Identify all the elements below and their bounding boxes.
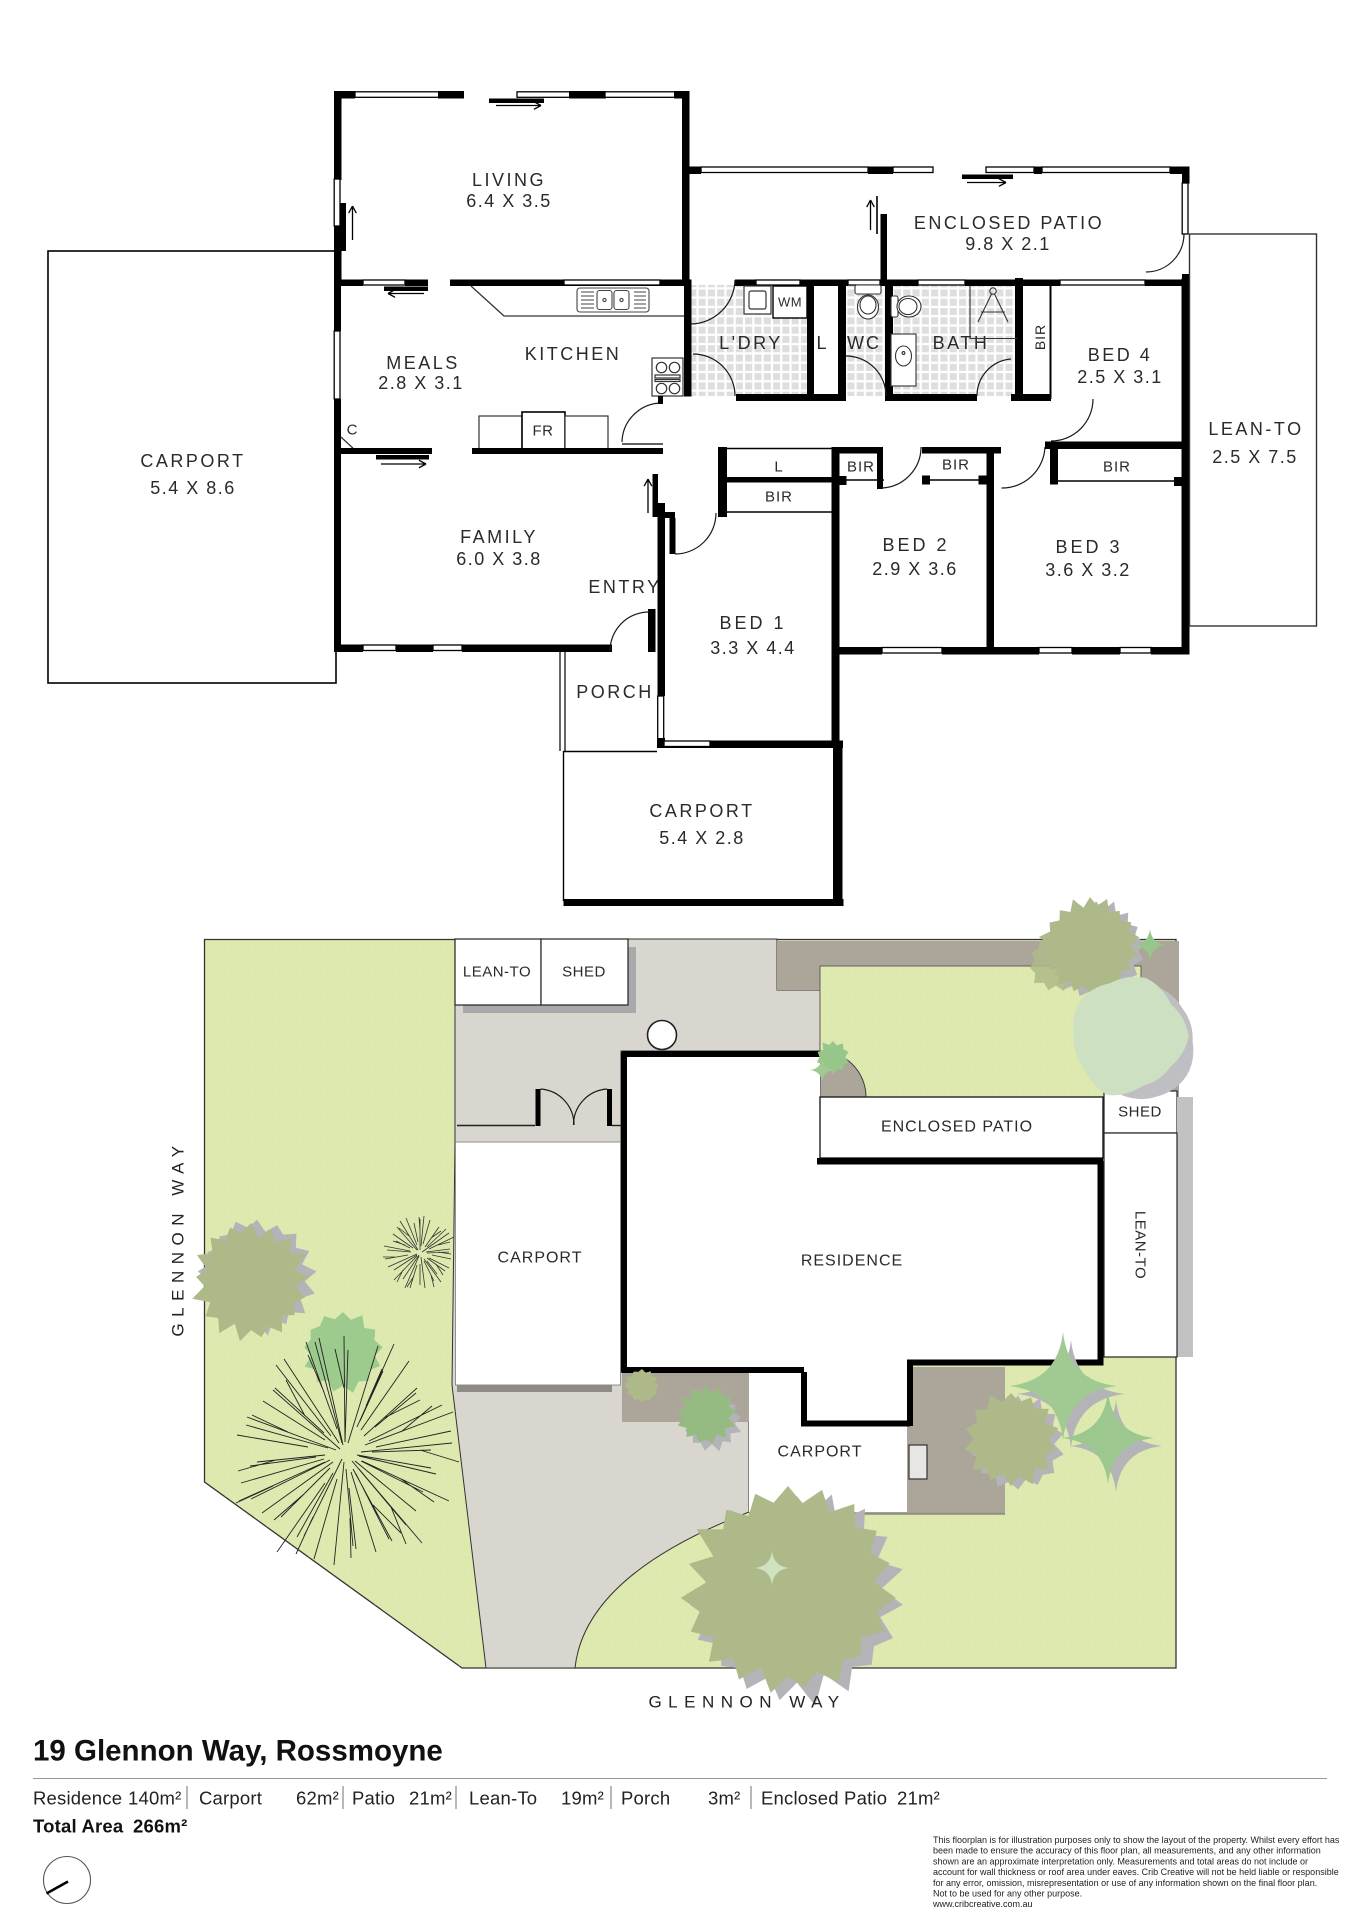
svg-text:2.5 X 7.5: 2.5 X 7.5	[1212, 447, 1298, 467]
svg-text:account for wall thickness or: account for wall thickness or roof area …	[933, 1867, 1339, 1877]
svg-text:5.4 X 8.6: 5.4 X 8.6	[150, 478, 236, 498]
svg-text:Not to be used for any other p: Not to be used for any other purpose.	[933, 1889, 1082, 1899]
svg-text:21m²: 21m²	[409, 1788, 452, 1809]
svg-text:BED 4: BED 4	[1088, 345, 1153, 365]
svg-text:GLENNON WAY: GLENNON WAY	[169, 1139, 188, 1336]
svg-text:LEAN-TO: LEAN-TO	[1208, 419, 1303, 439]
svg-text:FAMILY: FAMILY	[460, 527, 538, 547]
svg-text:ENCLOSED PATIO: ENCLOSED PATIO	[881, 1119, 1033, 1136]
svg-text:WC: WC	[847, 333, 881, 353]
svg-text:LEAN-TO: LEAN-TO	[463, 964, 531, 981]
svg-text:BATH: BATH	[933, 333, 990, 353]
svg-text:Carport: Carport	[199, 1788, 262, 1809]
svg-text:BIR: BIR	[1103, 459, 1131, 476]
svg-text:5.4 X 2.8: 5.4 X 2.8	[659, 828, 745, 848]
svg-text:KITCHEN: KITCHEN	[525, 344, 622, 364]
svg-text:SHED: SHED	[1118, 1104, 1162, 1121]
svg-text:CARPORT: CARPORT	[140, 451, 245, 471]
svg-text:for any error, omission, misre: for any error, omission, misrepresentati…	[933, 1878, 1317, 1888]
svg-text:BED 2: BED 2	[882, 535, 949, 555]
svg-text:3.3 X 4.4: 3.3 X 4.4	[710, 638, 796, 658]
svg-text:RESIDENCE: RESIDENCE	[801, 1253, 903, 1270]
svg-text:6.0 X 3.8: 6.0 X 3.8	[456, 549, 542, 569]
svg-text:C: C	[347, 422, 358, 439]
svg-text:3.6 X 3.2: 3.6 X 3.2	[1045, 560, 1131, 580]
svg-text:3m²: 3m²	[708, 1788, 740, 1809]
svg-text:WM: WM	[778, 295, 802, 310]
svg-text:CARPORT: CARPORT	[778, 1444, 863, 1461]
svg-text:ENTRY: ENTRY	[588, 577, 661, 597]
svg-text:BIR: BIR	[765, 489, 793, 506]
svg-text:266m²: 266m²	[133, 1816, 187, 1837]
svg-text:19m²: 19m²	[561, 1788, 604, 1809]
svg-text:BED 3: BED 3	[1055, 537, 1122, 557]
svg-text:SHED: SHED	[562, 964, 606, 981]
svg-text:2.8 X 3.1: 2.8 X 3.1	[378, 373, 464, 393]
svg-text:L'DRY: L'DRY	[719, 333, 783, 353]
svg-text:Patio: Patio	[352, 1788, 395, 1809]
svg-text:BIR: BIR	[847, 459, 875, 476]
svg-text:GLENNON WAY: GLENNON WAY	[648, 1693, 845, 1712]
svg-text:shown are an approximate inter: shown are an approximate interpretation …	[933, 1856, 1308, 1866]
svg-text:19 Glennon Way, Rossmoyne: 19 Glennon Way, Rossmoyne	[33, 1735, 443, 1768]
svg-text:ENCLOSED PATIO: ENCLOSED PATIO	[914, 213, 1104, 233]
svg-text:9.8 X 2.1: 9.8 X 2.1	[965, 234, 1051, 254]
svg-text:L: L	[816, 333, 827, 353]
svg-text:2.5 X 3.1: 2.5 X 3.1	[1077, 367, 1163, 387]
svg-text:LIVING: LIVING	[472, 170, 546, 190]
svg-text:LEAN-TO: LEAN-TO	[1132, 1211, 1149, 1279]
svg-text:CARPORT: CARPORT	[649, 801, 754, 821]
svg-text:Lean-To: Lean-To	[469, 1788, 537, 1809]
svg-text:FR: FR	[533, 423, 554, 440]
svg-text:PORCH: PORCH	[576, 682, 654, 702]
svg-text:www.cribcreative.com.au: www.cribcreative.com.au	[932, 1899, 1033, 1909]
svg-text:BIR: BIR	[1032, 324, 1048, 350]
svg-text:2.9 X 3.6: 2.9 X 3.6	[872, 559, 958, 579]
svg-text:Total Area: Total Area	[33, 1816, 124, 1837]
svg-text:Residence: Residence	[33, 1788, 122, 1809]
svg-text:BED 1: BED 1	[719, 613, 786, 633]
svg-text:Porch: Porch	[621, 1788, 670, 1809]
svg-text:62m²: 62m²	[296, 1788, 339, 1809]
svg-text:BIR: BIR	[942, 457, 970, 474]
svg-text:CARPORT: CARPORT	[498, 1250, 583, 1267]
svg-text:6.4 X 3.5: 6.4 X 3.5	[466, 191, 552, 211]
svg-text:140m²: 140m²	[128, 1788, 181, 1809]
svg-text:This floorplan is for illustra: This floorplan is for illustration purpo…	[933, 1835, 1340, 1845]
svg-text:L: L	[774, 459, 783, 476]
svg-text:been made to ensure the accura: been made to ensure the accuracy of this…	[933, 1846, 1321, 1856]
svg-text:21m²: 21m²	[897, 1788, 940, 1809]
svg-text:MEALS: MEALS	[386, 353, 460, 373]
svg-text:Enclosed Patio: Enclosed Patio	[761, 1788, 887, 1809]
